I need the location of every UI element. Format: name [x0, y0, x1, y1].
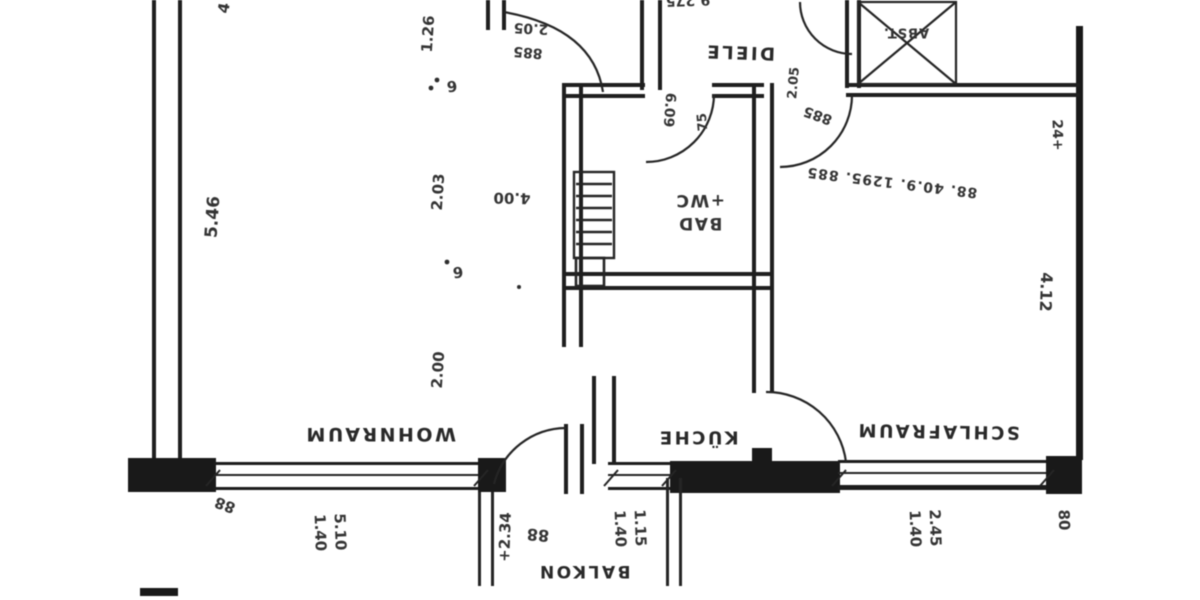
dim-kueche-window-h: 1.40 — [610, 510, 629, 548]
label-abst: ABST. — [883, 25, 929, 40]
label-bad-wc: BAD +WC — [660, 188, 740, 234]
bathtub — [574, 172, 614, 258]
label-diele: DIELE — [705, 40, 776, 63]
dim-chain-4: 6 — [452, 263, 464, 282]
dim-corner-right: 80 — [1055, 509, 1074, 530]
dim-chain-2: 6 — [446, 77, 458, 96]
dim-balkon-height: +2.34 — [495, 512, 515, 562]
dim-chain-1: 1.26 — [418, 15, 439, 53]
dimension-ticks — [206, 470, 1054, 486]
dim-balkon-mark: 88 — [526, 525, 550, 546]
label-wohnraum: WOHNRAUM — [304, 423, 456, 445]
dim-wohnraum-window-w: 5.10 — [331, 513, 350, 551]
dim-bad-door-b: 75 — [695, 112, 712, 131]
label-bad-line2: +WC — [675, 190, 725, 210]
washbasin — [576, 258, 604, 286]
dim-bath-width: 4.00 — [493, 189, 530, 208]
dim-top-edge-partial: 9.275 — [666, 0, 711, 9]
kueche-door-arc — [766, 392, 846, 462]
dim-wohnraum-window: 5.10 1.40 — [309, 504, 351, 561]
dim-chain-3: 2.03 — [428, 173, 449, 211]
dim-schlafraum-window: 2.45 1.40 — [904, 500, 946, 557]
label-bad-line1: BAD — [678, 213, 723, 233]
label-kueche: KÜCHE — [657, 427, 738, 448]
dim-schlafraum-door-height: 2.05 — [785, 66, 803, 99]
dim-entrance-door-width: 885 — [513, 43, 544, 61]
balkon-door-arc — [494, 428, 566, 484]
abst-door-arc — [800, 2, 852, 54]
label-schlafraum: SCHLAFRAUM — [856, 419, 1020, 443]
dim-right-wall: 4.12 — [1036, 272, 1056, 312]
dim-entrance-door-height: 2.05 — [513, 19, 548, 37]
dim-left-wall: 5.46 — [202, 195, 225, 238]
floorplan-sheet: WOHNRAUM KÜCHE SCHLAFRAUM DIELE BALKON A… — [0, 0, 1200, 600]
dim-kueche-window: 1.15 1.40 — [609, 500, 651, 557]
dim-wohnraum-window-h: 1.40 — [310, 514, 329, 552]
dim-chain-5: 2.00 — [428, 351, 449, 389]
floorplan-scan: WOHNRAUM KÜCHE SCHLAFRAUM DIELE BALKON A… — [0, 0, 1200, 600]
dim-schlafraum-window-w: 2.45 — [926, 509, 945, 547]
dim-corner-top-right: 24+ — [1048, 119, 1065, 151]
plan-linework — [0, 0, 1200, 600]
dim-kueche-window-w: 1.15 — [631, 509, 650, 547]
dim-bad-door-a: 6.09 — [660, 92, 678, 128]
abst-xbox — [858, 2, 956, 84]
dim-schlafraum-window-h: 1.40 — [905, 510, 924, 548]
label-balkon: BALKON — [537, 561, 630, 581]
